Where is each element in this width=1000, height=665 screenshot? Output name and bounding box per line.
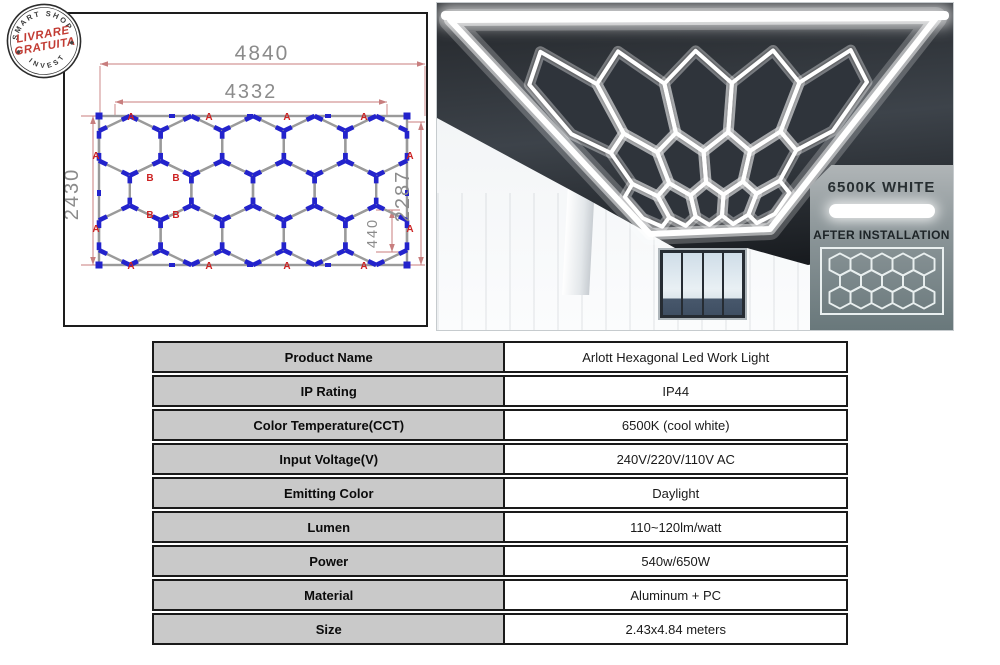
marker-b: B bbox=[172, 210, 179, 221]
spec-value: 240V/220V/110V AC bbox=[503, 445, 846, 473]
table-row: Color Temperature(CCT) 6500K (cool white… bbox=[152, 409, 848, 441]
spec-label: Product Name bbox=[154, 343, 503, 371]
marker-a: A bbox=[283, 261, 290, 272]
installation-photo: 6500K WHITE AFTER INSTALLATION bbox=[437, 3, 953, 330]
spec-value: Aluminum + PC bbox=[503, 581, 846, 609]
marker-a: A bbox=[127, 261, 134, 272]
marker-a: A bbox=[283, 112, 290, 123]
color-temp-label: 6500K WHITE bbox=[828, 179, 936, 196]
table-row: IP Rating IP44 bbox=[152, 375, 848, 407]
table-row: Emitting Color Daylight bbox=[152, 477, 848, 509]
after-install-label: AFTER INSTALLATION bbox=[813, 228, 950, 242]
marker-a: A bbox=[92, 151, 99, 162]
marker-a: A bbox=[360, 261, 367, 272]
marker-a: A bbox=[406, 224, 413, 235]
hex-layout-thumbnail bbox=[820, 247, 944, 315]
spec-label: Size bbox=[154, 615, 503, 643]
spec-value: 2.43x4.84 meters bbox=[503, 615, 846, 643]
marker-b: B bbox=[172, 173, 179, 184]
marker-b: B bbox=[146, 210, 153, 221]
marker-b: B bbox=[146, 173, 153, 184]
spec-value: IP44 bbox=[503, 377, 846, 405]
table-row: Input Voltage(V) 240V/220V/110V AC bbox=[152, 443, 848, 475]
marker-a: A bbox=[127, 112, 134, 123]
marker-a: A bbox=[406, 151, 413, 162]
spec-label: Lumen bbox=[154, 513, 503, 541]
spec-label: Power bbox=[154, 547, 503, 575]
spec-label: Color Temperature(CCT) bbox=[154, 411, 503, 439]
table-row: Lumen 110~120lm/watt bbox=[152, 511, 848, 543]
dimension-diagram: 4840 4332 2430 2287 440 A A A A A A A A … bbox=[63, 12, 428, 327]
hex-layout-svg bbox=[824, 250, 940, 312]
spec-value: 6500K (cool white) bbox=[503, 411, 846, 439]
marker-a: A bbox=[360, 112, 367, 123]
dim-outer-height-label: 2430 bbox=[65, 168, 83, 221]
table-row: Power 540w/650W bbox=[152, 545, 848, 577]
dim-outer-width-label: 4840 bbox=[235, 42, 290, 65]
spec-label: Input Voltage(V) bbox=[154, 445, 503, 473]
spec-label: Material bbox=[154, 581, 503, 609]
marker-a: A bbox=[205, 261, 212, 272]
spec-value: Arlott Hexagonal Led Work Light bbox=[503, 343, 846, 371]
led-bar-glow bbox=[829, 204, 935, 218]
dim-hex-size-label: 440 bbox=[365, 218, 381, 248]
table-row: Product Name Arlott Hexagonal Led Work L… bbox=[152, 341, 848, 373]
spec-label: Emitting Color bbox=[154, 479, 503, 507]
spec-value: Daylight bbox=[503, 479, 846, 507]
free-delivery-stamp: SMART SHOP LIVRARE GRATUITA ◆ ◆ INVEST bbox=[5, 2, 83, 80]
table-row: Material Aluminum + PC bbox=[152, 579, 848, 611]
spec-label: IP Rating bbox=[154, 377, 503, 405]
dim-inner-width-label: 4332 bbox=[225, 81, 278, 103]
spec-value: 110~120lm/watt bbox=[503, 513, 846, 541]
ceiling-edge-light bbox=[441, 11, 949, 20]
spec-value: 540w/650W bbox=[503, 547, 846, 575]
dim-inner-height-label: 2287 bbox=[392, 170, 414, 223]
spec-table: Product Name Arlott Hexagonal Led Work L… bbox=[152, 341, 848, 647]
marker-a: A bbox=[92, 224, 99, 235]
page: SMART SHOP LIVRARE GRATUITA ◆ ◆ INVEST 4… bbox=[0, 0, 1000, 665]
diagram-svg: 4840 4332 2430 2287 440 A A A A A A A A … bbox=[65, 14, 426, 325]
table-row: Size 2.43x4.84 meters bbox=[152, 613, 848, 645]
marker-a: A bbox=[205, 112, 212, 123]
info-panel: 6500K WHITE AFTER INSTALLATION bbox=[810, 165, 953, 330]
